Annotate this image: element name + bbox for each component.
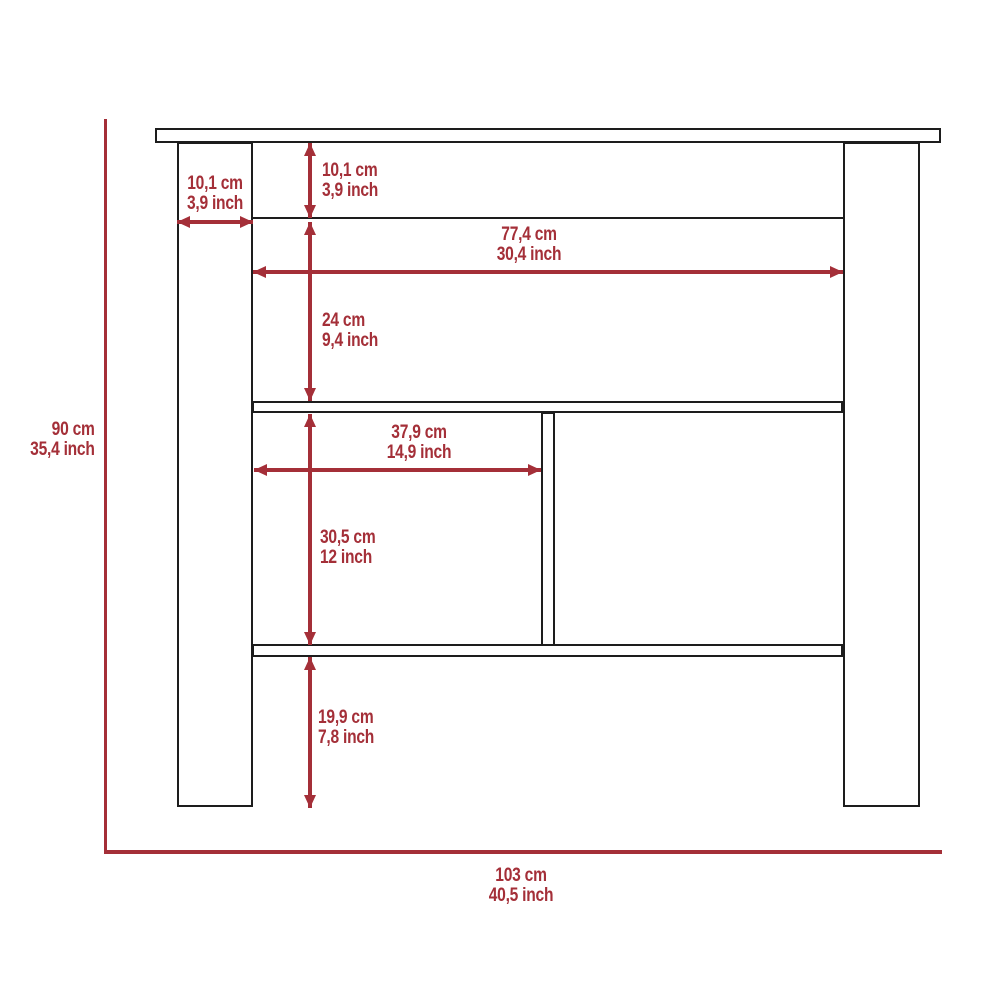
overall-width-extent-line [104, 850, 942, 854]
dim-value-inch: 35,4 inch [31, 440, 95, 460]
dim-value-inch: 12 inch [320, 548, 375, 568]
right-leg [843, 142, 920, 807]
dim-value-inch: 14,9 inch [387, 443, 451, 463]
leg-width-arrow [177, 220, 253, 224]
inner-width-label: 77,4 cm 30,4 inch [497, 225, 561, 265]
center-divider [541, 412, 555, 646]
countertop [155, 128, 941, 143]
overall-width-label: 103 cm 40,5 inch [489, 866, 553, 906]
bottom-height-label: 19,9 cm 7,8 inch [318, 708, 374, 748]
dim-value-inch: 3,9 inch [187, 194, 243, 214]
dim-value-inch: 40,5 inch [489, 886, 553, 906]
dim-value-cm: 37,9 cm [387, 423, 451, 443]
overall-height-extent-line [104, 119, 107, 853]
dim-value-inch: 3,9 inch [322, 181, 378, 201]
dim-value-cm: 77,4 cm [497, 225, 561, 245]
upper-shelf-line [252, 217, 843, 219]
top-height-label: 10,1 cm 3,9 inch [322, 161, 378, 201]
dim-value-cm: 30,5 cm [320, 528, 375, 548]
cubby-height-label: 30,5 cm 12 inch [320, 528, 375, 568]
dim-value-cm: 90 cm [31, 420, 95, 440]
upper-height-label: 24 cm 9,4 inch [322, 311, 378, 351]
lower-shelf [252, 644, 843, 657]
dim-value-cm: 19,9 cm [318, 708, 374, 728]
left-leg [177, 142, 253, 807]
cubby-height-arrow [308, 414, 312, 645]
top-height-arrow [308, 143, 312, 218]
dim-value-cm: 103 cm [489, 866, 553, 886]
dim-value-cm: 10,1 cm [322, 161, 378, 181]
cubby-width-arrow [254, 468, 541, 472]
dim-value-cm: 10,1 cm [187, 174, 243, 194]
overall-height-label: 90 cm 35,4 inch [31, 420, 95, 460]
leg-width-label: 10,1 cm 3,9 inch [187, 174, 243, 214]
cubby-width-label: 37,9 cm 14,9 inch [387, 423, 451, 463]
dim-value-inch: 7,8 inch [318, 728, 374, 748]
inner-width-arrow [253, 270, 843, 274]
dim-value-inch: 30,4 inch [497, 245, 561, 265]
upper-height-arrow [308, 222, 312, 401]
furniture-dimension-diagram: 10,1 cm 3,9 inch 10,1 cm 3,9 inch 77,4 c… [0, 0, 1000, 1000]
bottom-height-arrow [308, 657, 312, 808]
dim-value-cm: 24 cm [322, 311, 378, 331]
dim-value-inch: 9,4 inch [322, 331, 378, 351]
